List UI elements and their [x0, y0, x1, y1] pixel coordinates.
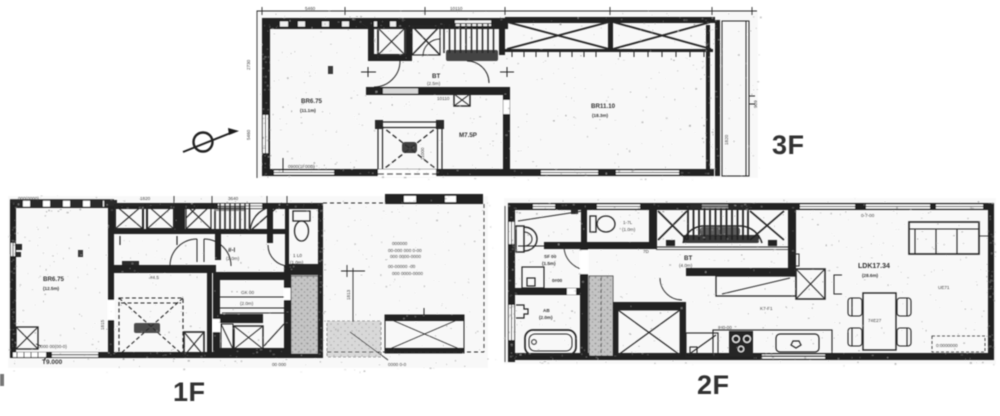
- svg-text:UE71: UE71: [938, 285, 950, 290]
- svg-text:5460: 5460: [305, 6, 316, 11]
- svg-text:1813: 1813: [346, 289, 351, 300]
- svg-text:10110: 10110: [450, 6, 463, 11]
- svg-text:10110: 10110: [437, 96, 450, 101]
- svg-text:3F: 3F: [772, 130, 805, 160]
- svg-text:(11.1m): (11.1m): [300, 108, 316, 113]
- svg-text:000 0000-0000: 000 0000-0000: [390, 254, 421, 259]
- svg-text:AB: AB: [543, 308, 550, 313]
- svg-text:1 L0: 1 L0: [293, 253, 302, 258]
- svg-text:(28.6m): (28.6m): [862, 273, 879, 278]
- svg-text:2F: 2F: [697, 370, 730, 400]
- svg-text:000000: 000000: [392, 241, 408, 246]
- svg-text:0000 00(00-0): 0000 00(00-0): [38, 344, 67, 349]
- svg-text:00-00000 -00: 00-00000 -00: [388, 264, 416, 269]
- svg-text:#-l: #-l: [228, 247, 236, 254]
- svg-text:(2.0m): (2.0m): [539, 315, 553, 320]
- svg-text:BR6.75: BR6.75: [301, 98, 323, 105]
- svg-text:909: 909: [753, 100, 758, 108]
- svg-text:00-000 000 0-00: 00-000 000 0-00: [388, 248, 422, 253]
- svg-text:1815: 1815: [100, 319, 105, 330]
- svg-text:5460: 5460: [246, 129, 251, 140]
- svg-text:T9.000: T9.000: [42, 359, 63, 366]
- svg-text:11000: 11000: [420, 147, 425, 160]
- svg-text:000(0000): 000(0000): [18, 196, 39, 201]
- svg-text:0:0000000: 0:0000000: [936, 343, 958, 348]
- svg-text:3640: 3640: [228, 196, 239, 201]
- svg-text:LDK17.34: LDK17.34: [858, 263, 890, 270]
- svg-text:00 000: 00 000: [272, 362, 286, 367]
- svg-text:1-7L: 1-7L: [623, 220, 633, 225]
- svg-text:2730: 2730: [246, 59, 251, 70]
- svg-text:(18.3m): (18.3m): [592, 113, 609, 118]
- svg-text:1820: 1820: [140, 196, 151, 201]
- svg-text:0900(1F00B): 0900(1F00B): [288, 164, 315, 169]
- svg-text:(1.0m): (1.0m): [622, 227, 636, 232]
- svg-text:(1.0m): (1.0m): [290, 260, 304, 265]
- svg-text:(2.0m): (2.0m): [226, 256, 240, 261]
- svg-text:BT: BT: [684, 255, 692, 262]
- svg-text:BR6.75: BR6.75: [43, 276, 65, 283]
- svg-text:0#00: 0#00: [552, 278, 563, 283]
- svg-text:1F: 1F: [173, 377, 206, 407]
- svg-text:000 0000-0000: 000 0000-0000: [392, 271, 423, 276]
- svg-text:74E27: 74E27: [868, 318, 882, 323]
- svg-text:(1.5m): (1.5m): [542, 261, 556, 266]
- svg-text:(2.5m): (2.5m): [427, 81, 441, 86]
- svg-text:7D: 7D: [643, 249, 650, 254]
- svg-text:0-7-00: 0-7-00: [861, 213, 875, 218]
- svg-text:GK 00: GK 00: [241, 290, 254, 295]
- svg-text:K7-F1: K7-F1: [760, 306, 773, 311]
- svg-text:(2.0m): (2.0m): [240, 301, 254, 306]
- svg-text:#4.5: #4.5: [150, 275, 159, 280]
- svg-text:IH0-00: IH0-00: [718, 325, 732, 330]
- svg-text:M7.5P: M7.5P: [459, 132, 477, 139]
- svg-text:BR11.10: BR11.10: [591, 103, 616, 110]
- svg-text:1820: 1820: [724, 134, 729, 145]
- svg-text:BT: BT: [432, 73, 440, 80]
- svg-text:(12.5m): (12.5m): [43, 286, 60, 291]
